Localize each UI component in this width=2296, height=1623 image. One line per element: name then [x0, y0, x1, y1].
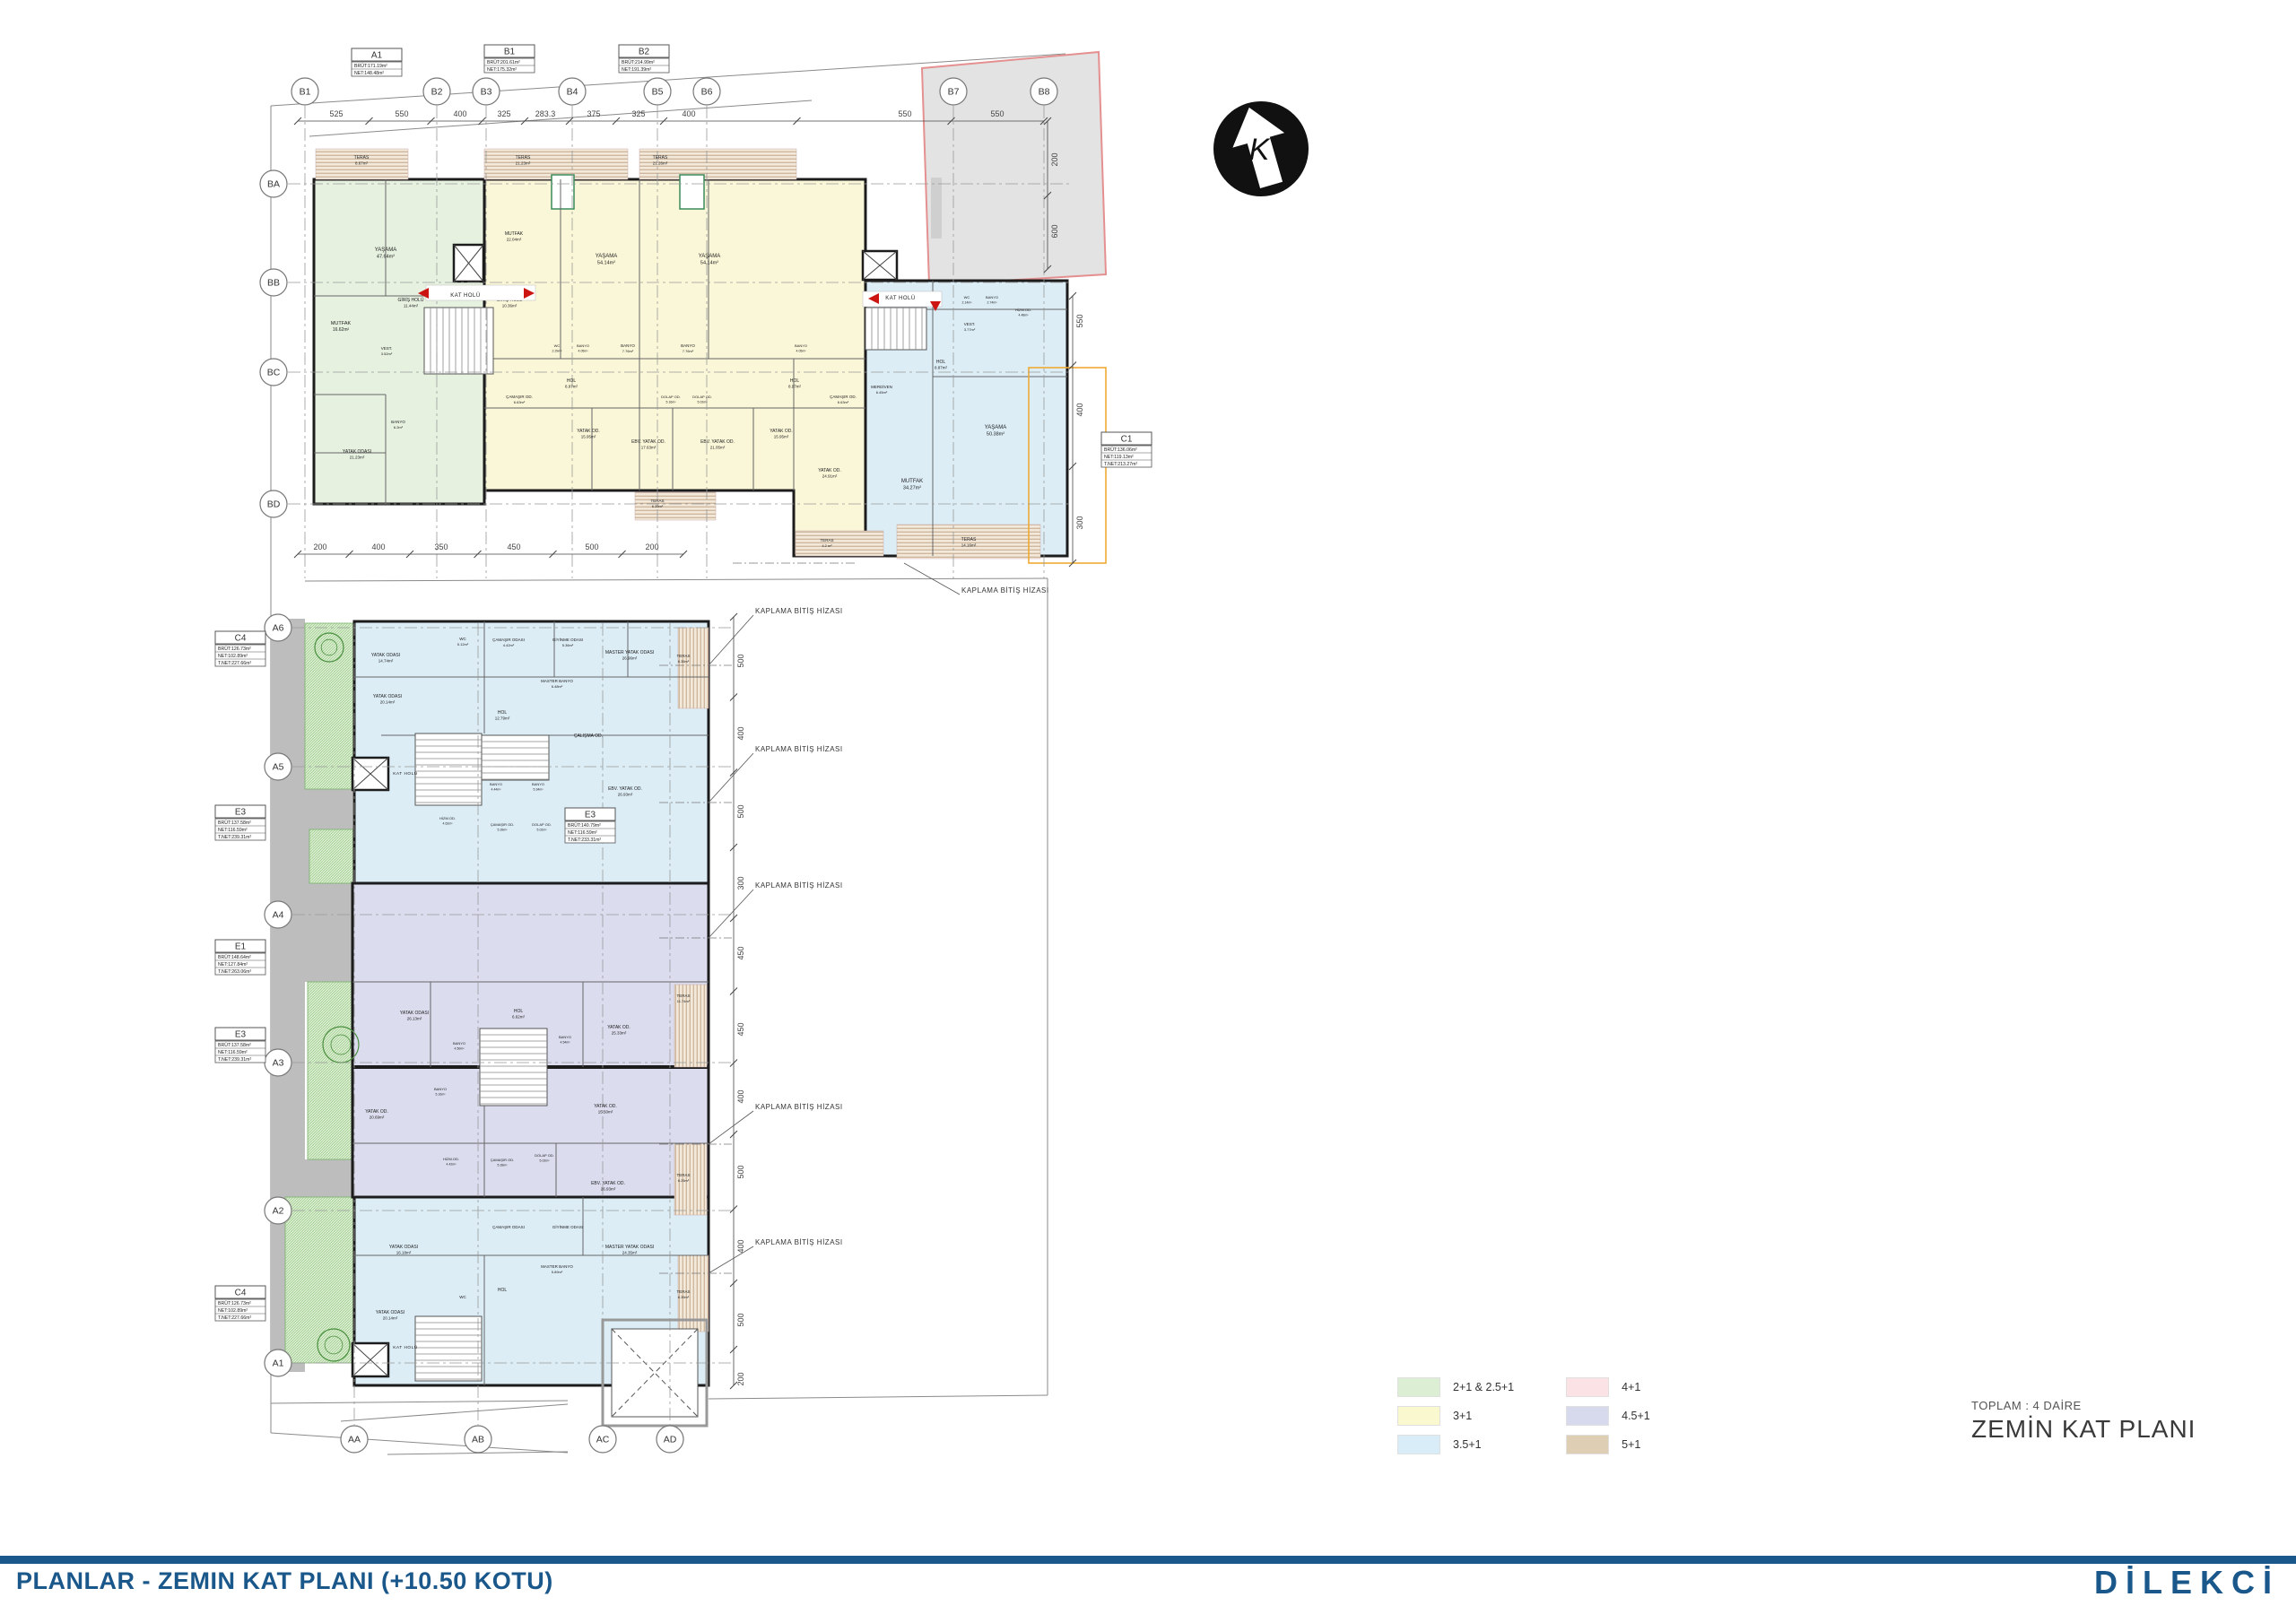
- room-area: 6.63m²: [838, 400, 849, 404]
- dim-value: 300: [1075, 516, 1084, 529]
- grid-bubble-label: A6: [273, 623, 284, 634]
- room-area: 25.33m²: [612, 1031, 627, 1036]
- room-area: 21.23m²: [516, 161, 531, 166]
- terrace: [635, 492, 716, 520]
- unit-box-area: NET:127.84m²: [218, 962, 248, 968]
- dim-value: 400: [1075, 403, 1084, 416]
- grid-bubble-label: B6: [701, 87, 713, 98]
- dim-value: 283.3: [535, 109, 556, 118]
- room-label: EBV. YATAK OD.: [631, 439, 665, 445]
- room-area: 5.39m²: [498, 829, 509, 832]
- grid-bubble-label: B8: [1039, 87, 1050, 98]
- grid-bubble-label: A5: [273, 762, 284, 773]
- room-label: TERAS: [820, 538, 833, 542]
- grid-bubble-label: A4: [273, 910, 284, 921]
- room-label: HİZM.OD.: [443, 1157, 459, 1161]
- room-area: 50.38m²: [987, 432, 1004, 438]
- unit-box-area: T.NET:263.06m²: [218, 969, 251, 975]
- unit-box-area: NET:116.59m²: [218, 828, 248, 833]
- unit-box-area: NET:102.89m²: [218, 654, 248, 659]
- room-label: MERDİVEN: [871, 384, 892, 389]
- unit-box-area: NET:102.89m²: [218, 1308, 248, 1314]
- unit-box-area: BRÜT:148.64m²: [218, 954, 251, 960]
- room-label: HOL: [498, 1288, 508, 1293]
- unit-box-area: BRÜT:171.19m²: [354, 63, 387, 69]
- leader-line: [709, 1111, 753, 1144]
- room-label: HOL: [567, 378, 577, 384]
- unit-box-id: E3: [235, 1030, 247, 1040]
- room-label: HOL: [790, 378, 800, 384]
- room-area: 15.95m²: [774, 435, 789, 439]
- stairs: [415, 733, 482, 805]
- room-area: 20.69m²: [370, 1115, 385, 1120]
- stairs: [480, 1028, 547, 1106]
- terrace: [796, 531, 883, 556]
- room-label: TERAS: [516, 155, 531, 161]
- room-area: 15.50m²: [598, 1110, 613, 1115]
- legend: 2+1 & 2.5+13+13.5+14+14.5+15+1: [1397, 1377, 1650, 1454]
- room-area: 20.14m²: [380, 700, 396, 705]
- unit-box-area: T.NET:239.31m²: [218, 1057, 251, 1063]
- dim-value: 450: [736, 1022, 745, 1036]
- unit-box-area: NET:148.48m²: [354, 71, 384, 76]
- room-area: 14.16m²: [961, 543, 977, 548]
- winter-garden: [552, 175, 574, 209]
- grid-bubble-label: AA: [348, 1435, 361, 1445]
- room-area: 5.39m²: [498, 1164, 509, 1167]
- grid-bubble-label: BA: [267, 179, 280, 190]
- room-label: MASTER BANYO: [541, 1264, 573, 1269]
- unit-box-id: E3: [585, 811, 596, 820]
- room-label: MASTER YATAK ODASI: [605, 1245, 654, 1250]
- room-area: 20.14m²: [383, 1316, 398, 1321]
- room-label: GİYİNME ODASI: [552, 1224, 583, 1229]
- room-label: ÇAMAŞIR ODASI: [492, 638, 525, 642]
- unit-box-area: BRÜT:136.06m²: [1104, 447, 1137, 453]
- terrace: [678, 628, 709, 708]
- room-area: 16.18m²: [396, 1251, 412, 1255]
- dim-value: 550: [395, 109, 408, 118]
- grid-bubble-label: B3: [481, 87, 492, 98]
- room-label: DOLAP OD.: [535, 1153, 554, 1158]
- room-area: 8.67m²: [355, 161, 369, 166]
- legend-swatch: [1397, 1406, 1440, 1426]
- site-boundary: [309, 100, 812, 136]
- room-label: BANYO: [434, 1087, 447, 1091]
- room-area: 6.62m²: [512, 1015, 526, 1020]
- legend-item: 3.5+1: [1397, 1435, 1514, 1454]
- room-label: BANYO: [559, 1035, 571, 1039]
- legend-item: 4+1: [1566, 1377, 1650, 1397]
- unit-box-id: E1: [235, 942, 247, 952]
- room-area: 17.63m²: [641, 446, 657, 450]
- dim-value: 500: [736, 1165, 745, 1178]
- room-area: 12.79m²: [495, 716, 510, 721]
- unit-box-id: C4: [235, 1289, 247, 1298]
- site-boundary: [271, 1401, 568, 1403]
- garden: [308, 982, 352, 1159]
- room-area: 6.35m²: [652, 504, 664, 508]
- unit-box-area: NET:175.32m²: [487, 67, 517, 73]
- winter-garden: [680, 175, 704, 209]
- room-area: 8.97m²: [565, 385, 578, 389]
- room-area: 16.62m²: [333, 327, 350, 333]
- room-label: TERAS: [676, 654, 690, 658]
- room-area: 5.36m²: [562, 643, 574, 647]
- room-label: YATAK ODASI: [376, 1310, 404, 1315]
- kaplama-annotation: KAPLAMA BİTİŞ HİZASI: [755, 607, 843, 615]
- legend-label: 4.5+1: [1622, 1410, 1650, 1422]
- room-label: YATAK ODASI: [389, 1245, 418, 1250]
- room-label: DOLAP OD.: [532, 822, 552, 827]
- north-arrow-icon: K: [1213, 100, 1309, 196]
- unit-box-area: BRÜT:214.99m²: [622, 59, 655, 65]
- site-gray-band: [305, 883, 352, 982]
- dim-value: 500: [585, 542, 598, 551]
- room-area: 4.42m²: [503, 643, 515, 647]
- dim-value: 200: [736, 1372, 745, 1385]
- dim-value: 400: [371, 542, 385, 551]
- room-label: TERAS: [653, 155, 668, 161]
- dim-value: 500: [736, 1313, 745, 1326]
- unit-box-area: T.NET:227.66m²: [218, 661, 251, 666]
- grid-bubble-label: BC: [267, 368, 281, 378]
- room-label: MUTFAK: [505, 231, 524, 237]
- dim-value: 550: [990, 109, 1004, 118]
- unit-box-id: C1: [1121, 435, 1133, 445]
- kaplama-annotation: KAPLAMA BİTİŞ HİZASI: [755, 1238, 843, 1246]
- leader-line: [709, 890, 753, 938]
- room-area: 5.02m²: [540, 1159, 551, 1163]
- room-label: VEST.: [381, 346, 393, 351]
- room-area: 21.05m²: [710, 446, 726, 450]
- room-label: MASTER YATAK ODASI: [605, 650, 654, 655]
- site-boundary: [305, 578, 1048, 581]
- room-area: 3.77m²: [964, 327, 976, 332]
- room-area: 4.54m²: [561, 1041, 571, 1045]
- room-label: TERAS: [676, 994, 690, 998]
- room-area: 6.35m²: [678, 659, 690, 664]
- dim-value: 450: [736, 946, 745, 959]
- room-label: GİYİNME ODASI: [552, 637, 583, 642]
- legend-item: 3+1: [1397, 1406, 1514, 1426]
- room-area: 5.12m²: [457, 642, 469, 647]
- room-area: 6.35m²: [678, 1295, 690, 1299]
- room-label: YATAK ODASI: [400, 1011, 429, 1016]
- room-area: 7.76m²: [622, 349, 634, 353]
- room-label: YAŞAMA: [596, 254, 618, 259]
- room-label: YATAK OD.: [577, 429, 600, 434]
- dim-value: 600: [1050, 224, 1059, 238]
- grid-bubble-label: A2: [273, 1206, 284, 1217]
- site-boundary: [341, 1404, 568, 1421]
- unit-box-area: NET:116.59m²: [218, 1050, 248, 1055]
- room-label: GİRİŞ HOLÜ: [398, 297, 424, 303]
- unit-box-id: E3: [235, 808, 247, 818]
- leader-line: [709, 753, 753, 803]
- company-logo: DİLEKCİ: [2094, 1564, 2280, 1601]
- room-area: 4.44m²: [491, 788, 502, 792]
- room-area: 4.50m²: [455, 1047, 465, 1051]
- site-boundary: [271, 1433, 568, 1453]
- room-label: BANYO: [681, 343, 695, 348]
- room-area: 5.89m²: [552, 1270, 563, 1274]
- room-label: BANYO: [490, 782, 502, 786]
- room-area: 5.16m²: [436, 1093, 447, 1097]
- room-label: TERAS: [354, 155, 370, 161]
- room-label: HOL: [936, 360, 946, 365]
- room-label: MUTFAK: [901, 479, 923, 484]
- unit-box-id: C4: [235, 634, 247, 644]
- unit-box-area: NET:191.39m²: [622, 67, 651, 73]
- dim-value: 200: [1050, 152, 1059, 166]
- room-area: 5.34m²: [534, 788, 544, 792]
- floor-plan-canvas: 525550400325283.337532540055055020040035…: [0, 0, 2296, 1623]
- site-gray-band: [305, 1159, 354, 1197]
- room-label: EBV. YATAK OD.: [608, 786, 642, 792]
- room-label: YATAK ODASI: [371, 653, 400, 658]
- room-area: 8.87m²: [935, 366, 948, 370]
- grid-bubble-label: BB: [267, 278, 280, 289]
- grid-bubble-label: AD: [664, 1435, 677, 1445]
- room-label: EBV. YATAK OD.: [591, 1181, 625, 1186]
- grid-bubble-label: B4: [567, 87, 578, 98]
- leader-line: [709, 1246, 753, 1273]
- dim-value: 325: [497, 109, 510, 118]
- unit-box-area: NET:116.59m²: [568, 830, 597, 836]
- room-area: 15.95m²: [581, 435, 596, 439]
- room-label: ÇALIŞMA OD.: [574, 733, 603, 739]
- room-area: 7.76m²: [683, 349, 694, 353]
- room-area: 8.97m²: [788, 385, 802, 389]
- room-area: 4.05m²: [796, 350, 807, 353]
- site-boundary: [709, 1395, 1048, 1399]
- room-label: DOLAP OD.: [661, 395, 681, 399]
- footer-divider: [0, 1556, 2296, 1564]
- room-label: TERAS: [676, 1173, 690, 1177]
- grid-bubble-label: A1: [273, 1358, 284, 1369]
- plan-caption: TOPLAM : 4 DAİRE ZEMİN KAT PLANI: [1971, 1399, 2196, 1444]
- unit-box-area: BRÜT:137.58m²: [218, 1042, 251, 1048]
- room-label: TERAS: [961, 537, 977, 542]
- legend-label: 3+1: [1453, 1410, 1472, 1422]
- room-label: YATAK OD.: [818, 468, 841, 473]
- room-area: 34.27m²: [903, 486, 921, 491]
- room-area: 4.05m²: [578, 350, 589, 353]
- dim-value: 550: [898, 109, 911, 118]
- room-area: 6.63m²: [514, 400, 526, 404]
- dim-value: 450: [507, 542, 520, 551]
- room-area: 4.48m²: [1019, 314, 1030, 317]
- sheet-title: PLANLAR - ZEMIN KAT PLANI (+10.50 KOTU): [16, 1567, 553, 1595]
- room-area: 21.23m²: [350, 456, 365, 460]
- room-area: 24.35m²: [622, 1251, 638, 1255]
- room-area: 4.62m²: [443, 822, 454, 826]
- unit-box-area: BRÜT:201.61m²: [487, 59, 520, 65]
- dim-value: 400: [736, 726, 745, 740]
- room-label: ÇAMAŞIR OD.: [491, 822, 514, 827]
- room-label: YATAK ODASI: [343, 449, 371, 455]
- room-area: 11.74m²: [677, 999, 691, 1003]
- unit-box-id: B2: [639, 48, 650, 57]
- room-area: 21.26m²: [653, 161, 668, 166]
- grid-bubble-label: B1: [300, 87, 311, 98]
- dim-value: 500: [736, 654, 745, 667]
- plan-name: ZEMİN KAT PLANI: [1971, 1415, 2196, 1444]
- room-label: YAŞAMA: [375, 247, 397, 253]
- unit-box-area: NET:119.13m²: [1104, 455, 1134, 460]
- room-label: EBV. YATAK OD.: [700, 439, 735, 445]
- stairs: [482, 735, 549, 780]
- room-label: HİZM.OD.: [1015, 308, 1031, 312]
- room-label: DOLAP OD.: [692, 395, 712, 399]
- room-label: YATAK ODASI: [373, 694, 402, 699]
- unit-box-id: A1: [371, 51, 383, 61]
- room-area: 26.13m²: [407, 1017, 422, 1021]
- room-label: YATAK OD.: [365, 1109, 388, 1115]
- room-area: 11.44m²: [404, 304, 419, 308]
- room-label: BANYO: [986, 295, 998, 299]
- unit-box-id: B1: [504, 48, 516, 57]
- room-label: ÇAMAŞIR OD.: [491, 1158, 514, 1162]
- legend-item: 4.5+1: [1566, 1406, 1650, 1426]
- room-label: MUTFAK: [331, 321, 352, 326]
- drawing-sheet: 525550400325283.337532540055055020040035…: [0, 0, 2296, 1623]
- room-area: 4.2 m²: [822, 543, 832, 548]
- dim-value: 300: [736, 876, 745, 890]
- kaplama-annotation: KAPLAMA BİTİŞ HİZASI: [755, 1103, 843, 1111]
- room-label: WC: [964, 295, 970, 299]
- room-label: WC: [554, 343, 561, 348]
- legend-label: 3.5+1: [1453, 1438, 1482, 1451]
- room-label: HOL: [498, 710, 508, 716]
- room-area: 6.48m²: [552, 684, 563, 689]
- room-area: 14.74m²: [378, 659, 394, 664]
- unit-box-area: T.NET:239.31m²: [218, 835, 251, 840]
- kat-holu-label: KAT HOLÜ: [885, 295, 915, 301]
- room-area: 5.02m²: [537, 829, 548, 832]
- dim-value: 400: [682, 109, 695, 118]
- room-label: WC: [459, 1295, 466, 1299]
- garden: [285, 1197, 354, 1363]
- room-area: 6.2m²: [394, 425, 404, 430]
- room-area: 54.14m²: [597, 261, 615, 266]
- room-area: 26.96m²: [622, 656, 638, 661]
- stairs: [415, 1316, 482, 1381]
- kat-holu-label: KAT HOLÜ: [393, 770, 418, 777]
- hall-strip: [426, 285, 535, 300]
- grid-bubble-label: B7: [948, 87, 960, 98]
- room-area: 2.74m²: [987, 301, 998, 305]
- north-label: K: [1249, 133, 1271, 167]
- dim-value: 325: [631, 109, 645, 118]
- room-label: ÇAMAŞIR OD.: [506, 395, 533, 399]
- room-area: 2.29m²: [552, 350, 563, 353]
- dim-value: 500: [736, 804, 745, 818]
- grid-bubble-label: BD: [267, 499, 281, 510]
- room-label: TERAS: [676, 1289, 690, 1294]
- room-label: ÇAMAŞIR OD.: [830, 395, 857, 399]
- room-area: 24.91m²: [822, 474, 838, 479]
- kaplama-annotation: KAPLAMA BİTİŞ HİZASI: [755, 881, 843, 890]
- dim-value: 550: [1075, 314, 1084, 327]
- dim-value: 400: [736, 1089, 745, 1103]
- room-area: 26.93m²: [601, 1187, 616, 1192]
- kaplama-annotation: KAPLAMA BİTİŞ HİZASI: [961, 586, 1049, 595]
- unit-box-area: T.NET:213.27m²: [1104, 462, 1137, 467]
- room-label: BANYO: [621, 343, 635, 348]
- room-label: ÇAMAŞIR ODASI: [492, 1225, 525, 1229]
- room-area: 22.04m²: [507, 238, 522, 242]
- grid-bubble-label: AC: [596, 1435, 610, 1445]
- room-area: 10.36m²: [502, 304, 517, 308]
- dim-value: 375: [587, 109, 600, 118]
- unit-box-area: BRÜT:126.73m²: [218, 1300, 251, 1306]
- room-label: VEST.: [964, 322, 976, 326]
- legend-swatch: [1397, 1435, 1440, 1454]
- grid-bubble-label: A3: [273, 1058, 284, 1069]
- dim-value: 525: [329, 109, 343, 118]
- total-units-label: TOPLAM : 4 DAİRE: [1971, 1399, 2196, 1412]
- legend-label: 5+1: [1622, 1438, 1640, 1451]
- stairs: [424, 308, 493, 374]
- grid-bubble-label: B5: [652, 87, 664, 98]
- legend-swatch: [1566, 1377, 1609, 1397]
- room-label: HOL: [514, 1009, 524, 1014]
- dim-value: 200: [313, 542, 326, 551]
- kat-holu-label: KAT HOLÜ: [450, 292, 480, 299]
- legend-swatch: [1566, 1406, 1609, 1426]
- room-area: 3.52m²: [381, 352, 393, 356]
- legend-item: 2+1 & 2.5+1: [1397, 1377, 1514, 1397]
- garden: [305, 623, 354, 789]
- room-label: HİZM.OD.: [439, 816, 456, 820]
- legend-swatch: [1397, 1377, 1440, 1397]
- unit-box-area: BRÜT:137.58m²: [218, 820, 251, 826]
- room-area: 4.42m²: [447, 1163, 457, 1167]
- room-label: BANYO: [795, 343, 807, 348]
- dim-value: 350: [434, 542, 448, 551]
- legend-item: 5+1: [1566, 1435, 1650, 1454]
- kaplama-annotation: KAPLAMA BİTİŞ HİZASI: [755, 745, 843, 753]
- kat-holu-label: KAT HOLÜ: [393, 1344, 418, 1350]
- legend-swatch: [1566, 1435, 1609, 1454]
- dim-value: 200: [645, 542, 658, 551]
- legend-label: 2+1 & 2.5+1: [1453, 1381, 1514, 1393]
- grid-bubble-label: AB: [472, 1435, 484, 1445]
- dim-value: 400: [736, 1239, 745, 1253]
- room-area: 5.16m²: [666, 401, 677, 404]
- stairs: [865, 308, 926, 350]
- room-area: 54.14m²: [700, 261, 718, 266]
- room-label: YAŞAMA: [985, 425, 1007, 430]
- room-label: YATAK OD.: [607, 1025, 631, 1030]
- unit-box-area: T.NET:227.66m²: [218, 1315, 251, 1321]
- room-label: YATAK OD.: [770, 429, 793, 434]
- room-label: BANYO: [532, 782, 544, 786]
- room-area: 47.64m²: [377, 255, 395, 260]
- room-label: YATAK OD.: [594, 1104, 617, 1109]
- leader-line: [709, 615, 753, 665]
- room-area: 5.02m²: [698, 401, 709, 404]
- unit-box-area: BRÜT:126.73m²: [218, 646, 251, 652]
- legend-label: 4+1: [1622, 1381, 1640, 1393]
- unit-box-area: BRÜT:140.79m²: [568, 822, 601, 829]
- room-label: WC: [459, 637, 466, 641]
- room-label: BANYO: [391, 420, 405, 424]
- grid-bubble-label: B2: [431, 87, 443, 98]
- room-label: MASTER BANYO: [541, 679, 573, 683]
